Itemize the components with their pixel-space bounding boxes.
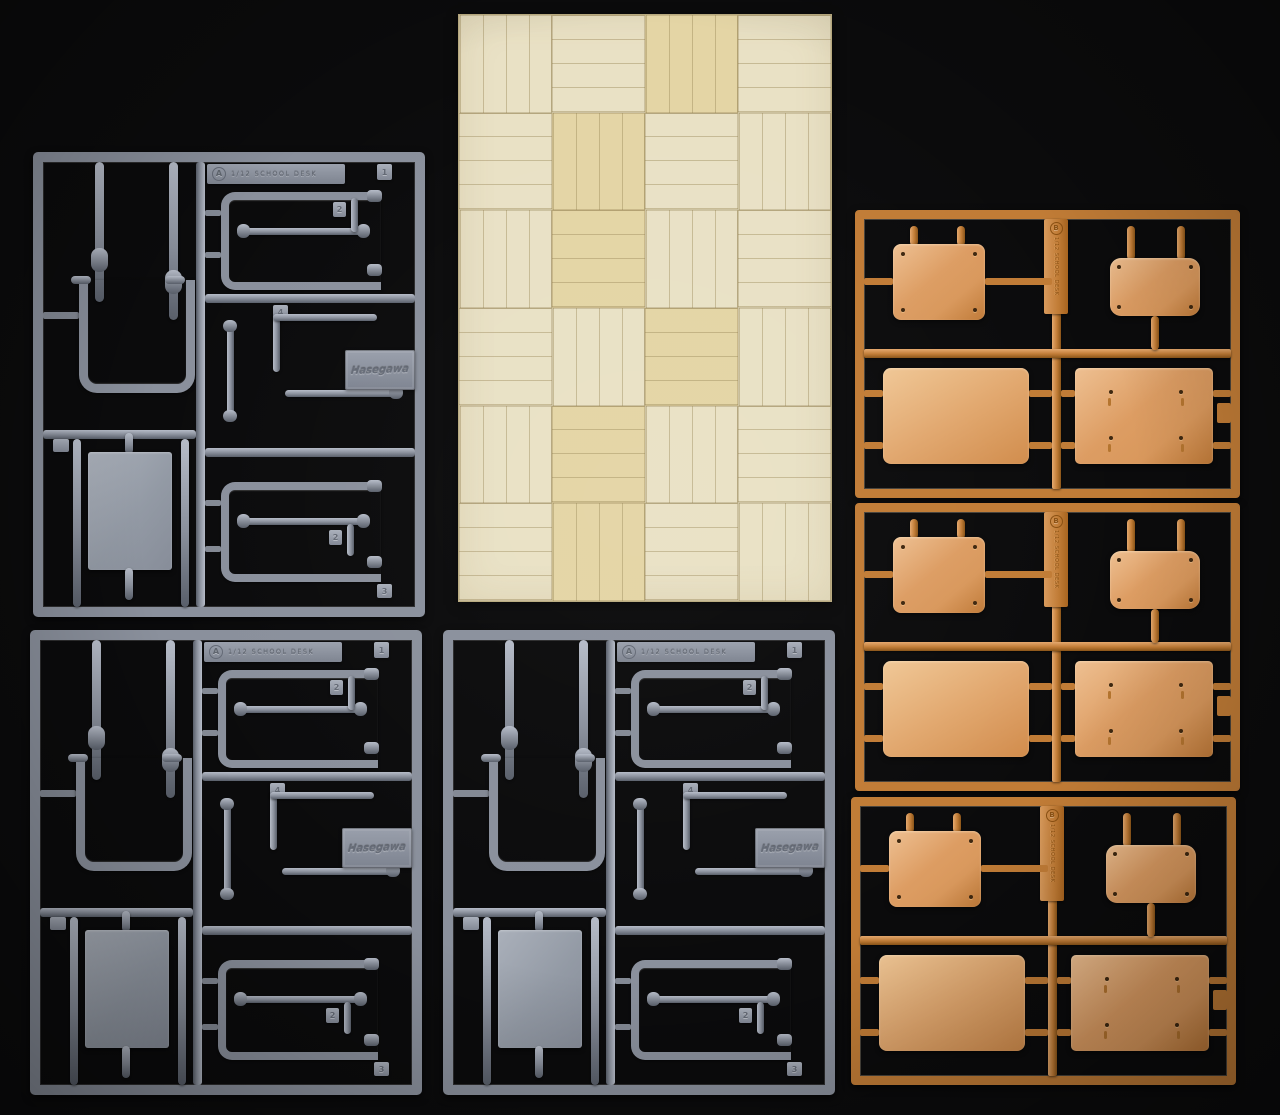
cross-bar xyxy=(245,518,363,525)
screw-hole xyxy=(1189,265,1193,269)
screw-hole xyxy=(973,252,977,256)
part-number-tag: 3 xyxy=(374,1062,389,1076)
sprue-gate xyxy=(864,278,893,285)
screw-hole xyxy=(897,895,901,899)
screw-hole xyxy=(1175,1023,1179,1027)
cross-bar-boss xyxy=(647,992,660,1006)
cross-bar xyxy=(245,228,363,235)
screw-hole xyxy=(1189,558,1193,562)
panel-side-rod xyxy=(178,917,186,1085)
sprue-gate xyxy=(1061,390,1075,397)
panel-peg xyxy=(910,226,918,246)
screw-hole xyxy=(1185,892,1189,896)
small-cylinder xyxy=(761,676,768,710)
wood-tile xyxy=(738,406,831,504)
screw-hole xyxy=(1109,436,1113,440)
part-number-tag: 1 xyxy=(377,164,392,180)
runner-horizontal-right-2 xyxy=(615,926,825,935)
screw-hole xyxy=(1189,598,1193,602)
blank-tab xyxy=(463,917,479,930)
part-number-tag: 2 xyxy=(743,680,756,695)
runner-label-tab: A 1/12 SCHOOL DESK xyxy=(204,642,342,662)
runner-label-text: 1/12 SCHOOL DESK xyxy=(1049,824,1055,883)
panel-side-rod xyxy=(181,439,189,607)
alignment-peg xyxy=(1108,737,1111,745)
panel-side-rod xyxy=(483,917,491,1085)
tube-end-cap xyxy=(364,1034,379,1046)
desk-side-panel xyxy=(88,452,172,570)
panel-side-rod xyxy=(73,439,81,607)
sprue-gate xyxy=(860,1029,879,1036)
screw-hole xyxy=(897,839,901,843)
runner-horizontal xyxy=(864,642,1231,651)
sprue-gate xyxy=(1061,683,1075,690)
runner-letter-badge: B xyxy=(1050,222,1063,235)
sprue-gate xyxy=(615,730,631,736)
screw-hole xyxy=(969,839,973,843)
seat-back-panel xyxy=(893,244,985,320)
wood-tile xyxy=(738,113,831,211)
tube-end-cap xyxy=(364,742,379,754)
l-tube-horizontal xyxy=(273,314,377,321)
tube-end-cap xyxy=(367,556,382,568)
wood-tile xyxy=(459,406,552,504)
runner-vertical xyxy=(196,162,205,607)
runner-label-tab: A 1/12 SCHOOL DESK xyxy=(617,642,755,662)
alignment-peg xyxy=(1177,1031,1180,1039)
sprue-gate xyxy=(864,571,893,578)
sprue-gate xyxy=(1213,442,1231,449)
part-number-tag: 2 xyxy=(333,202,346,217)
tube-end-cap xyxy=(777,958,792,970)
runner-horizontal xyxy=(860,936,1227,945)
brand-logo-plaque: Hasegawa xyxy=(755,828,825,868)
panel-peg xyxy=(122,1046,130,1078)
brand-logo-text: Hasegawa xyxy=(350,363,409,376)
desk-top-panel xyxy=(883,368,1029,464)
lower-bar xyxy=(282,868,392,875)
sprue-gate xyxy=(864,390,883,397)
wood-tile xyxy=(645,406,738,504)
rod-collar xyxy=(91,248,108,272)
runner-letter-badge: B xyxy=(1050,515,1063,528)
tube-end-cap xyxy=(367,480,382,492)
runner-horizontal-left xyxy=(43,430,196,439)
cross-bar-boss xyxy=(357,224,370,238)
tube-end-cap xyxy=(364,958,379,970)
screw-hole xyxy=(1175,977,1179,981)
screw-hole xyxy=(1185,852,1189,856)
screw-hole xyxy=(1117,305,1121,309)
panel-peg xyxy=(910,519,918,539)
wood-tile xyxy=(552,308,645,406)
screw-hole xyxy=(973,308,977,312)
rod-collar xyxy=(88,726,105,750)
u-tube-tip xyxy=(165,276,185,284)
short-rod xyxy=(637,802,644,898)
alignment-peg xyxy=(1181,691,1184,699)
cross-bar-boss xyxy=(354,992,367,1006)
sprue-gate xyxy=(864,442,883,449)
wood-tile xyxy=(552,406,645,504)
frame-notch xyxy=(1217,403,1231,423)
photo-canvas: A 1/12 SCHOOL DESK 1 2 4 Hasegawa xyxy=(0,0,1280,1115)
runner-letter-badge: B xyxy=(1046,809,1059,822)
runner-label-tab: B 1/12 SCHOOL DESK xyxy=(1040,806,1064,901)
screw-hole xyxy=(969,895,973,899)
panel-side-rod xyxy=(70,917,78,1085)
alignment-peg xyxy=(1104,985,1107,993)
seat-back-panel xyxy=(889,831,981,907)
desk-frame-tube xyxy=(631,960,791,1060)
panel-peg xyxy=(535,911,543,932)
sprue-gate xyxy=(1213,683,1231,690)
u-tube-tip xyxy=(68,754,88,762)
sprue-gate xyxy=(1057,977,1071,984)
screw-hole xyxy=(1109,683,1113,687)
small-cylinder xyxy=(347,524,354,556)
lower-bar xyxy=(285,390,395,397)
alignment-peg xyxy=(1181,398,1184,406)
gray-sprue-a-3: A 1/12 SCHOOL DESK 1 2 4 Hasegawa xyxy=(443,630,835,1095)
part-number-tag: 2 xyxy=(329,530,342,545)
rod-collar xyxy=(501,726,518,750)
alignment-peg xyxy=(1108,444,1111,452)
runner-label-tab: B 1/12 SCHOOL DESK xyxy=(1044,219,1068,314)
runner-letter-badge: A xyxy=(209,645,223,659)
panel-peg xyxy=(953,813,961,833)
l-tube-vertical xyxy=(683,792,690,850)
runner-horizontal-right-2 xyxy=(202,926,412,935)
desk-underside-panel xyxy=(1075,368,1213,464)
runner-letter-badge: A xyxy=(212,167,226,181)
sprue-gate xyxy=(453,790,489,797)
part-number-tag: 2 xyxy=(326,1008,339,1023)
sprue-gate xyxy=(40,790,76,797)
screw-hole xyxy=(973,545,977,549)
panel-side-rod xyxy=(591,917,599,1085)
screw-hole xyxy=(1113,852,1117,856)
wood-tile xyxy=(645,210,738,308)
part-number-tag: 3 xyxy=(787,1062,802,1076)
screw-hole xyxy=(1109,390,1113,394)
cross-bar-boss xyxy=(767,702,780,716)
panel-peg xyxy=(957,226,965,246)
short-rod xyxy=(224,802,231,898)
blank-tab xyxy=(50,917,66,930)
wood-tile xyxy=(552,15,645,113)
desk-top-panel xyxy=(883,661,1029,757)
screw-hole xyxy=(901,545,905,549)
runner-label-tab: B 1/12 SCHOOL DESK xyxy=(1044,512,1068,607)
wood-tile xyxy=(645,15,738,113)
panel-peg xyxy=(1173,813,1181,847)
sprue-gate xyxy=(205,546,221,552)
sprue-gate xyxy=(1029,390,1052,397)
seat-panel xyxy=(1106,845,1196,903)
panel-peg xyxy=(1123,813,1131,847)
wood-tile xyxy=(459,308,552,406)
desk-frame-tube xyxy=(221,482,381,582)
wood-tile xyxy=(645,113,738,211)
runner-label-text: 1/12 SCHOOL DESK xyxy=(1053,237,1059,296)
runner-label-text: 1/12 SCHOOL DESK xyxy=(1053,530,1059,589)
gray-sprue-a-1: A 1/12 SCHOOL DESK 1 2 4 Hasegawa xyxy=(33,152,425,617)
u-tube-tip xyxy=(575,754,595,762)
sprue-gate xyxy=(864,683,883,690)
sprue-gate xyxy=(985,278,1052,285)
sprue-gate xyxy=(202,978,218,984)
tube-end-cap xyxy=(777,668,792,680)
alignment-peg xyxy=(1108,691,1111,699)
sprue-gate xyxy=(615,1024,631,1030)
sprue-gate xyxy=(43,312,79,319)
panel-peg xyxy=(1127,519,1135,553)
panel-peg xyxy=(1151,609,1159,643)
wood-tile xyxy=(459,113,552,211)
cross-bar xyxy=(655,996,773,1003)
panel-peg xyxy=(957,519,965,539)
screw-hole xyxy=(1105,1023,1109,1027)
alignment-peg xyxy=(1181,737,1184,745)
panel-peg xyxy=(122,911,130,932)
tube-end-cap xyxy=(777,742,792,754)
short-rod xyxy=(227,324,234,420)
tube-end-cap xyxy=(777,1034,792,1046)
u-tube-tip xyxy=(162,754,182,762)
desk-side-panel xyxy=(498,930,582,1048)
small-cylinder xyxy=(351,198,358,232)
sprue-gate xyxy=(1061,735,1075,742)
screw-hole xyxy=(1105,977,1109,981)
runner-horizontal-right-2 xyxy=(205,448,415,457)
wood-tile xyxy=(738,210,831,308)
cross-bar xyxy=(242,996,360,1003)
wood-tile xyxy=(645,503,738,601)
wood-tile xyxy=(738,15,831,113)
u-tube-tip xyxy=(481,754,501,762)
tube-end-cap xyxy=(367,264,382,276)
screw-hole xyxy=(1117,558,1121,562)
cross-bar-boss xyxy=(354,702,367,716)
cross-bar-boss xyxy=(647,702,660,716)
desk-top-panel xyxy=(879,955,1025,1051)
orange-sprue-b-1: B 1/12 SCHOOL DESK xyxy=(855,210,1240,498)
sprue-gate xyxy=(985,571,1052,578)
wood-tile xyxy=(738,503,831,601)
screw-hole xyxy=(901,601,905,605)
screw-hole xyxy=(1117,265,1121,269)
screw-hole xyxy=(1179,729,1183,733)
cross-bar-boss xyxy=(234,702,247,716)
brand-logo-plaque: Hasegawa xyxy=(345,350,415,390)
rod-boss xyxy=(220,798,234,810)
l-tube-horizontal xyxy=(270,792,374,799)
panel-peg xyxy=(535,1046,543,1078)
wood-tile xyxy=(552,113,645,211)
panel-peg xyxy=(1127,226,1135,260)
alignment-peg xyxy=(1177,985,1180,993)
part-number-tag: 2 xyxy=(330,680,343,695)
seat-back-panel xyxy=(893,537,985,613)
panel-peg xyxy=(1177,519,1185,553)
chair-leg-u-tube xyxy=(76,758,192,871)
chair-leg-u-tube xyxy=(489,758,605,871)
sprue-gate xyxy=(864,735,883,742)
runner-letter-badge: A xyxy=(622,645,636,659)
blank-tab xyxy=(53,439,69,452)
sprue-gate xyxy=(1029,442,1052,449)
cross-bar-boss xyxy=(234,992,247,1006)
cross-bar-boss xyxy=(237,514,250,528)
wood-tile xyxy=(738,308,831,406)
sprue-gate xyxy=(860,977,879,984)
sprue-gate xyxy=(1213,735,1231,742)
wood-sheet xyxy=(458,14,832,602)
desk-frame-tube xyxy=(218,960,378,1060)
runner-horizontal-left xyxy=(453,908,606,917)
screw-hole xyxy=(973,601,977,605)
wood-tile xyxy=(645,308,738,406)
sprue-gate xyxy=(1029,683,1052,690)
l-tube-vertical xyxy=(270,792,277,850)
sprue-gate xyxy=(615,688,631,694)
runner-horizontal-right-1 xyxy=(202,772,412,781)
sprue-gate xyxy=(205,500,221,506)
frame-notch xyxy=(1213,990,1227,1010)
runner-vertical xyxy=(606,640,615,1085)
part-number-tag: 1 xyxy=(374,642,389,658)
panel-peg xyxy=(1147,903,1155,937)
screw-hole xyxy=(901,308,905,312)
cross-bar-boss xyxy=(237,224,250,238)
brand-logo-text: Hasegawa xyxy=(760,841,819,854)
rod-boss xyxy=(223,320,237,332)
screw-hole xyxy=(1109,729,1113,733)
orange-sprue-b-3: B 1/12 SCHOOL DESK xyxy=(851,797,1236,1085)
alignment-peg xyxy=(1108,398,1111,406)
small-cylinder xyxy=(348,676,355,710)
gray-sprue-a-2: A 1/12 SCHOOL DESK 1 2 4 Hasegawa xyxy=(30,630,422,1095)
sprue-gate xyxy=(615,978,631,984)
screw-hole xyxy=(1179,436,1183,440)
runner-label-text: 1/12 SCHOOL DESK xyxy=(641,648,727,656)
desk-side-panel xyxy=(85,930,169,1048)
wood-tile xyxy=(552,503,645,601)
wood-tile xyxy=(459,210,552,308)
seat-panel xyxy=(1110,258,1200,316)
runner-label-tab: A 1/12 SCHOOL DESK xyxy=(207,164,345,184)
screw-hole xyxy=(1179,390,1183,394)
panel-peg xyxy=(1151,316,1159,350)
small-cylinder xyxy=(757,1002,764,1034)
screw-hole xyxy=(1117,598,1121,602)
wood-tile xyxy=(552,210,645,308)
orange-sprue-b-2: B 1/12 SCHOOL DESK xyxy=(855,503,1240,791)
cross-bar xyxy=(655,706,773,713)
chair-leg-u-tube xyxy=(79,280,195,393)
sprue-gate xyxy=(1025,977,1048,984)
panel-peg xyxy=(125,568,133,600)
sprue-gate xyxy=(1213,390,1231,397)
sprue-gate xyxy=(202,1024,218,1030)
screw-hole xyxy=(1189,305,1193,309)
cross-bar-boss xyxy=(767,992,780,1006)
part-number-tag: 3 xyxy=(377,584,392,598)
wood-tile xyxy=(459,503,552,601)
tube-end-cap xyxy=(367,190,382,202)
panel-peg xyxy=(906,813,914,833)
sprue-gate xyxy=(860,865,889,872)
desk-underside-panel xyxy=(1071,955,1209,1051)
u-tube-tip xyxy=(71,276,91,284)
seat-panel xyxy=(1110,551,1200,609)
alignment-peg xyxy=(1104,1031,1107,1039)
sprue-gate xyxy=(1061,442,1075,449)
runner-horizontal-right-1 xyxy=(615,772,825,781)
desk-underside-panel xyxy=(1075,661,1213,757)
l-tube-vertical xyxy=(273,314,280,372)
rod-boss xyxy=(633,888,647,900)
sprue-gate xyxy=(1209,1029,1227,1036)
runner-vertical xyxy=(193,640,202,1085)
panel-peg xyxy=(125,433,133,454)
rod-boss xyxy=(223,410,237,422)
sprue-gate xyxy=(1057,1029,1071,1036)
small-cylinder xyxy=(344,1002,351,1034)
sprue-gate xyxy=(205,210,221,216)
l-tube-horizontal xyxy=(683,792,787,799)
sprue-gate xyxy=(205,252,221,258)
sprue-gate xyxy=(1029,735,1052,742)
runner-label-text: 1/12 SCHOOL DESK xyxy=(228,648,314,656)
screw-hole xyxy=(1113,892,1117,896)
brand-logo-text: Hasegawa xyxy=(347,841,406,854)
sprue-gate xyxy=(202,688,218,694)
sprue-gate xyxy=(202,730,218,736)
rod-boss xyxy=(220,888,234,900)
brand-logo-plaque: Hasegawa xyxy=(342,828,412,868)
wood-tile xyxy=(459,15,552,113)
frame-notch xyxy=(1217,696,1231,716)
lower-bar xyxy=(695,868,805,875)
runner-label-text: 1/12 SCHOOL DESK xyxy=(231,170,317,178)
cross-bar-boss xyxy=(357,514,370,528)
runner-horizontal-left xyxy=(40,908,193,917)
runner-horizontal xyxy=(864,349,1231,358)
sprue-gate xyxy=(981,865,1048,872)
screw-hole xyxy=(1179,683,1183,687)
cross-bar xyxy=(242,706,360,713)
rod-boss xyxy=(633,798,647,810)
alignment-peg xyxy=(1181,444,1184,452)
panel-peg xyxy=(1177,226,1185,260)
part-number-tag: 1 xyxy=(787,642,802,658)
part-number-tag: 2 xyxy=(739,1008,752,1023)
sprue-gate xyxy=(1025,1029,1048,1036)
sprue-gate xyxy=(1209,977,1227,984)
screw-hole xyxy=(901,252,905,256)
tube-end-cap xyxy=(364,668,379,680)
runner-horizontal-right-1 xyxy=(205,294,415,303)
